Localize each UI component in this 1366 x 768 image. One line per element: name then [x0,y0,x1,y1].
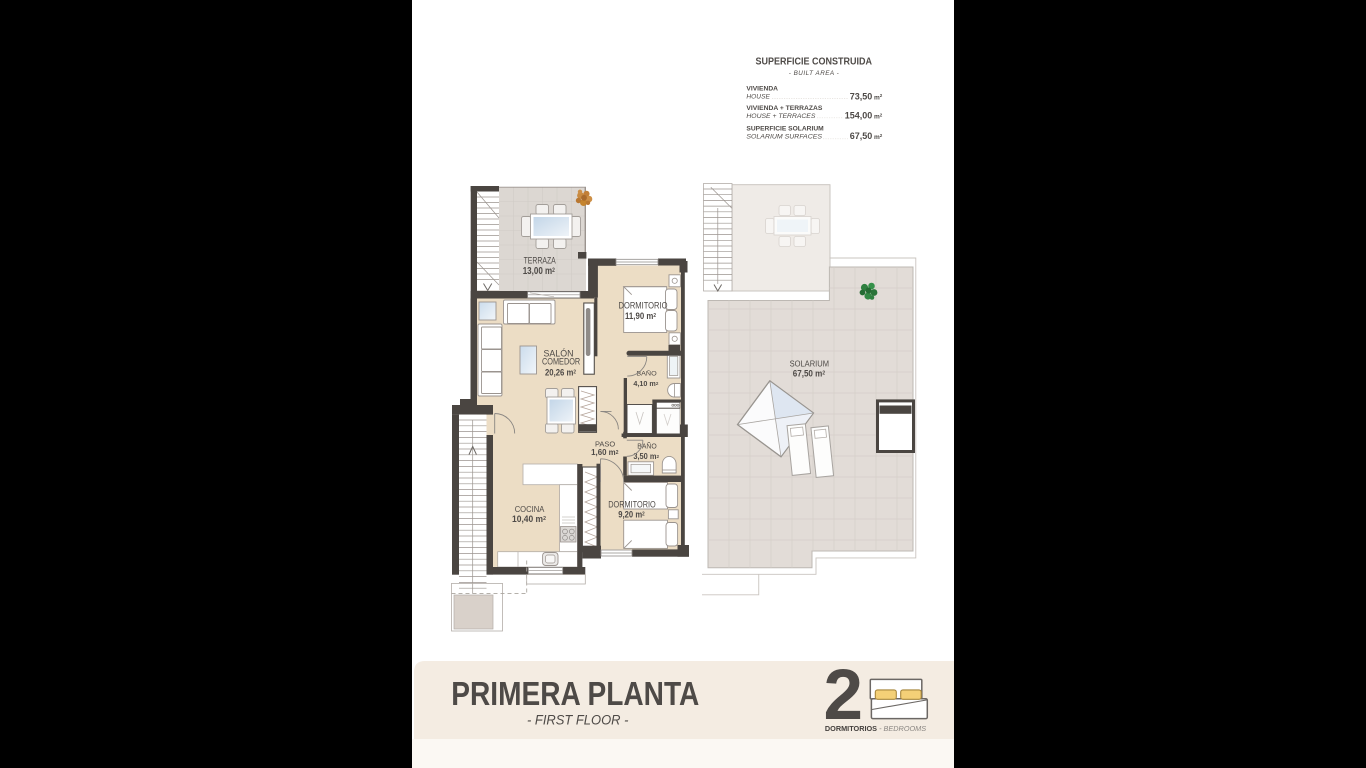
svg-text:73,50: 73,50 [850,91,873,101]
svg-text:PRIMERA PLANTA: PRIMERA PLANTA [451,675,699,712]
svg-text:20,26 m2: 20,26 m2 [545,368,576,379]
svg-text:DORMITORIO: DORMITORIO [619,299,668,310]
svg-text:13,00 m2: 13,00 m2 [523,266,556,277]
svg-text:SUPERFICIE SOLARIUM: SUPERFICIE SOLARIUM [746,125,824,132]
svg-text:4,10 m2: 4,10 m2 [633,379,658,388]
svg-text:154,00: 154,00 [845,111,873,121]
svg-text:3,50 m2: 3,50 m2 [633,452,659,461]
svg-text:- BUILT AREA -: - BUILT AREA - [789,70,840,77]
svg-text:- FIRST FLOOR -: - FIRST FLOOR - [527,711,629,727]
svg-text:VIVIENDA: VIVIENDA [746,86,778,93]
svg-text:TERRAZA: TERRAZA [524,255,556,265]
svg-text:DORMITORIO: DORMITORIO [608,499,656,509]
svg-text:67,50: 67,50 [850,131,873,141]
svg-text:SUPERFICIE CONSTRUIDA: SUPERFICIE CONSTRUIDA [756,57,873,68]
svg-text:COMEDOR: COMEDOR [542,357,580,367]
svg-text:HOUSE + TERRACES: HOUSE + TERRACES [746,113,816,120]
svg-text:HOUSE: HOUSE [746,94,770,101]
svg-text:10,40 m2: 10,40 m2 [512,514,546,524]
svg-text:67,50 m2: 67,50 m2 [793,368,825,379]
svg-text:1,60 m2: 1,60 m2 [591,448,619,457]
svg-text:VIVIENDA + TERRAZAS: VIVIENDA + TERRAZAS [746,105,823,112]
svg-text:DORMITORIOS - BEDROOMS: DORMITORIOS - BEDROOMS [825,724,926,733]
svg-text:11,90 m2: 11,90 m2 [625,311,656,322]
svg-text:SOLARIUM SURFACES: SOLARIUM SURFACES [746,134,822,141]
svg-text:COCINA: COCINA [515,504,545,514]
svg-text:BAÑO: BAÑO [636,369,656,378]
svg-text:9,20 m2: 9,20 m2 [618,509,644,519]
